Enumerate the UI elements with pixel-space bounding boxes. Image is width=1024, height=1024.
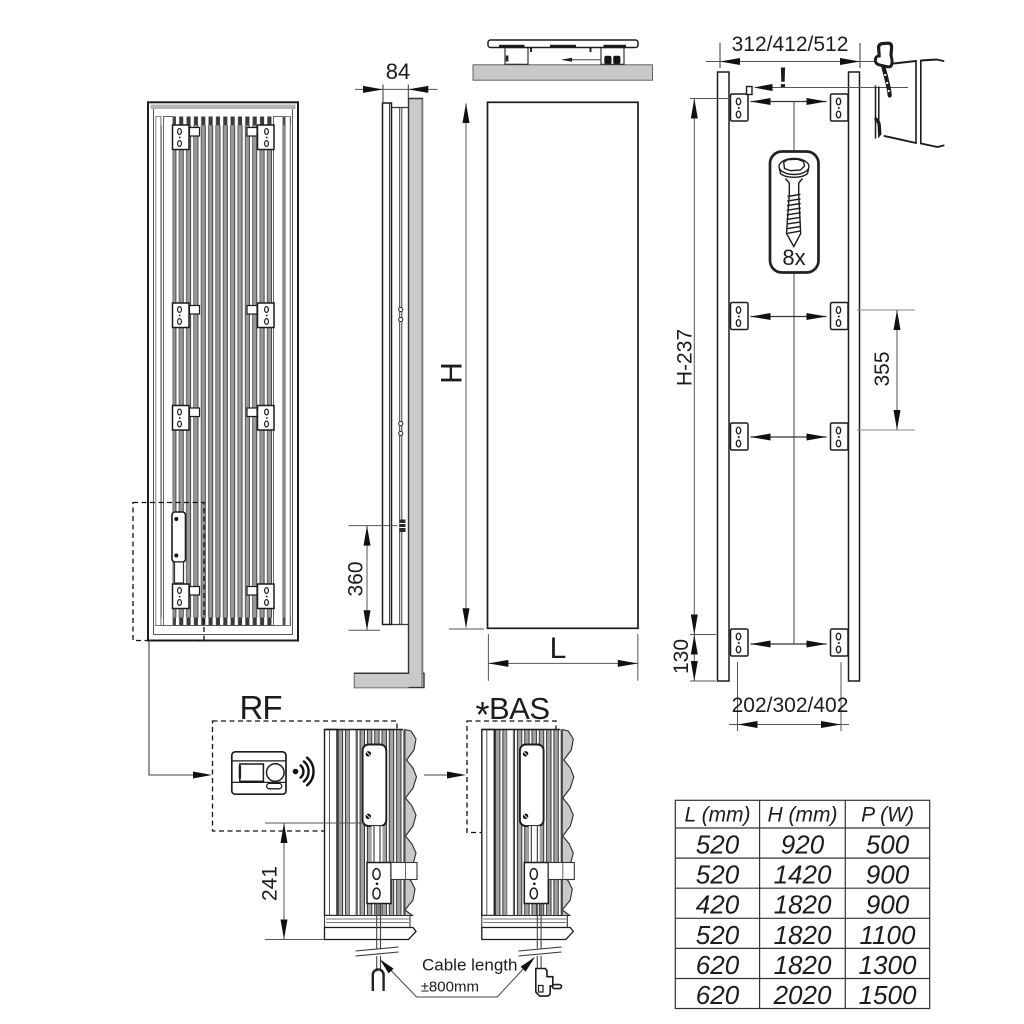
svg-text:±800mm: ±800mm xyxy=(421,979,479,996)
svg-text:900: 900 xyxy=(866,860,910,890)
svg-text:H-237: H-237 xyxy=(674,329,697,386)
svg-text:520: 520 xyxy=(696,830,740,860)
svg-text:900: 900 xyxy=(866,890,910,920)
svg-text:130: 130 xyxy=(670,639,693,674)
svg-text:!: ! xyxy=(778,62,788,95)
svg-text:360: 360 xyxy=(345,561,368,596)
svg-text:2020: 2020 xyxy=(773,980,832,1010)
svg-text:L (mm): L (mm) xyxy=(684,804,750,827)
svg-text:1820: 1820 xyxy=(774,890,832,920)
svg-text:620: 620 xyxy=(696,980,740,1010)
svg-text:620: 620 xyxy=(696,950,740,980)
svg-text:312/412/512: 312/412/512 xyxy=(732,33,849,56)
svg-text:P (W): P (W) xyxy=(861,804,914,827)
svg-text:355: 355 xyxy=(871,351,894,386)
svg-text:202/302/402: 202/302/402 xyxy=(732,694,849,717)
svg-text:L: L xyxy=(550,632,567,665)
svg-text:Cable length: Cable length xyxy=(422,956,517,975)
svg-text:H: H xyxy=(436,362,469,384)
svg-text:8x: 8x xyxy=(782,245,805,270)
svg-text:H (mm): H (mm) xyxy=(768,804,838,827)
svg-text:920: 920 xyxy=(781,830,825,860)
svg-text:1300: 1300 xyxy=(859,950,917,980)
svg-text:500: 500 xyxy=(866,830,910,860)
svg-text:420: 420 xyxy=(696,890,740,920)
svg-text:520: 520 xyxy=(696,920,740,950)
svg-text:1820: 1820 xyxy=(774,950,832,980)
svg-text:520: 520 xyxy=(696,860,740,890)
svg-text:1500: 1500 xyxy=(859,980,917,1010)
svg-text:241: 241 xyxy=(259,866,282,901)
svg-text:1820: 1820 xyxy=(774,920,832,950)
svg-text:1420: 1420 xyxy=(774,860,832,890)
svg-text:84: 84 xyxy=(386,59,410,84)
svg-text:1100: 1100 xyxy=(860,920,916,950)
